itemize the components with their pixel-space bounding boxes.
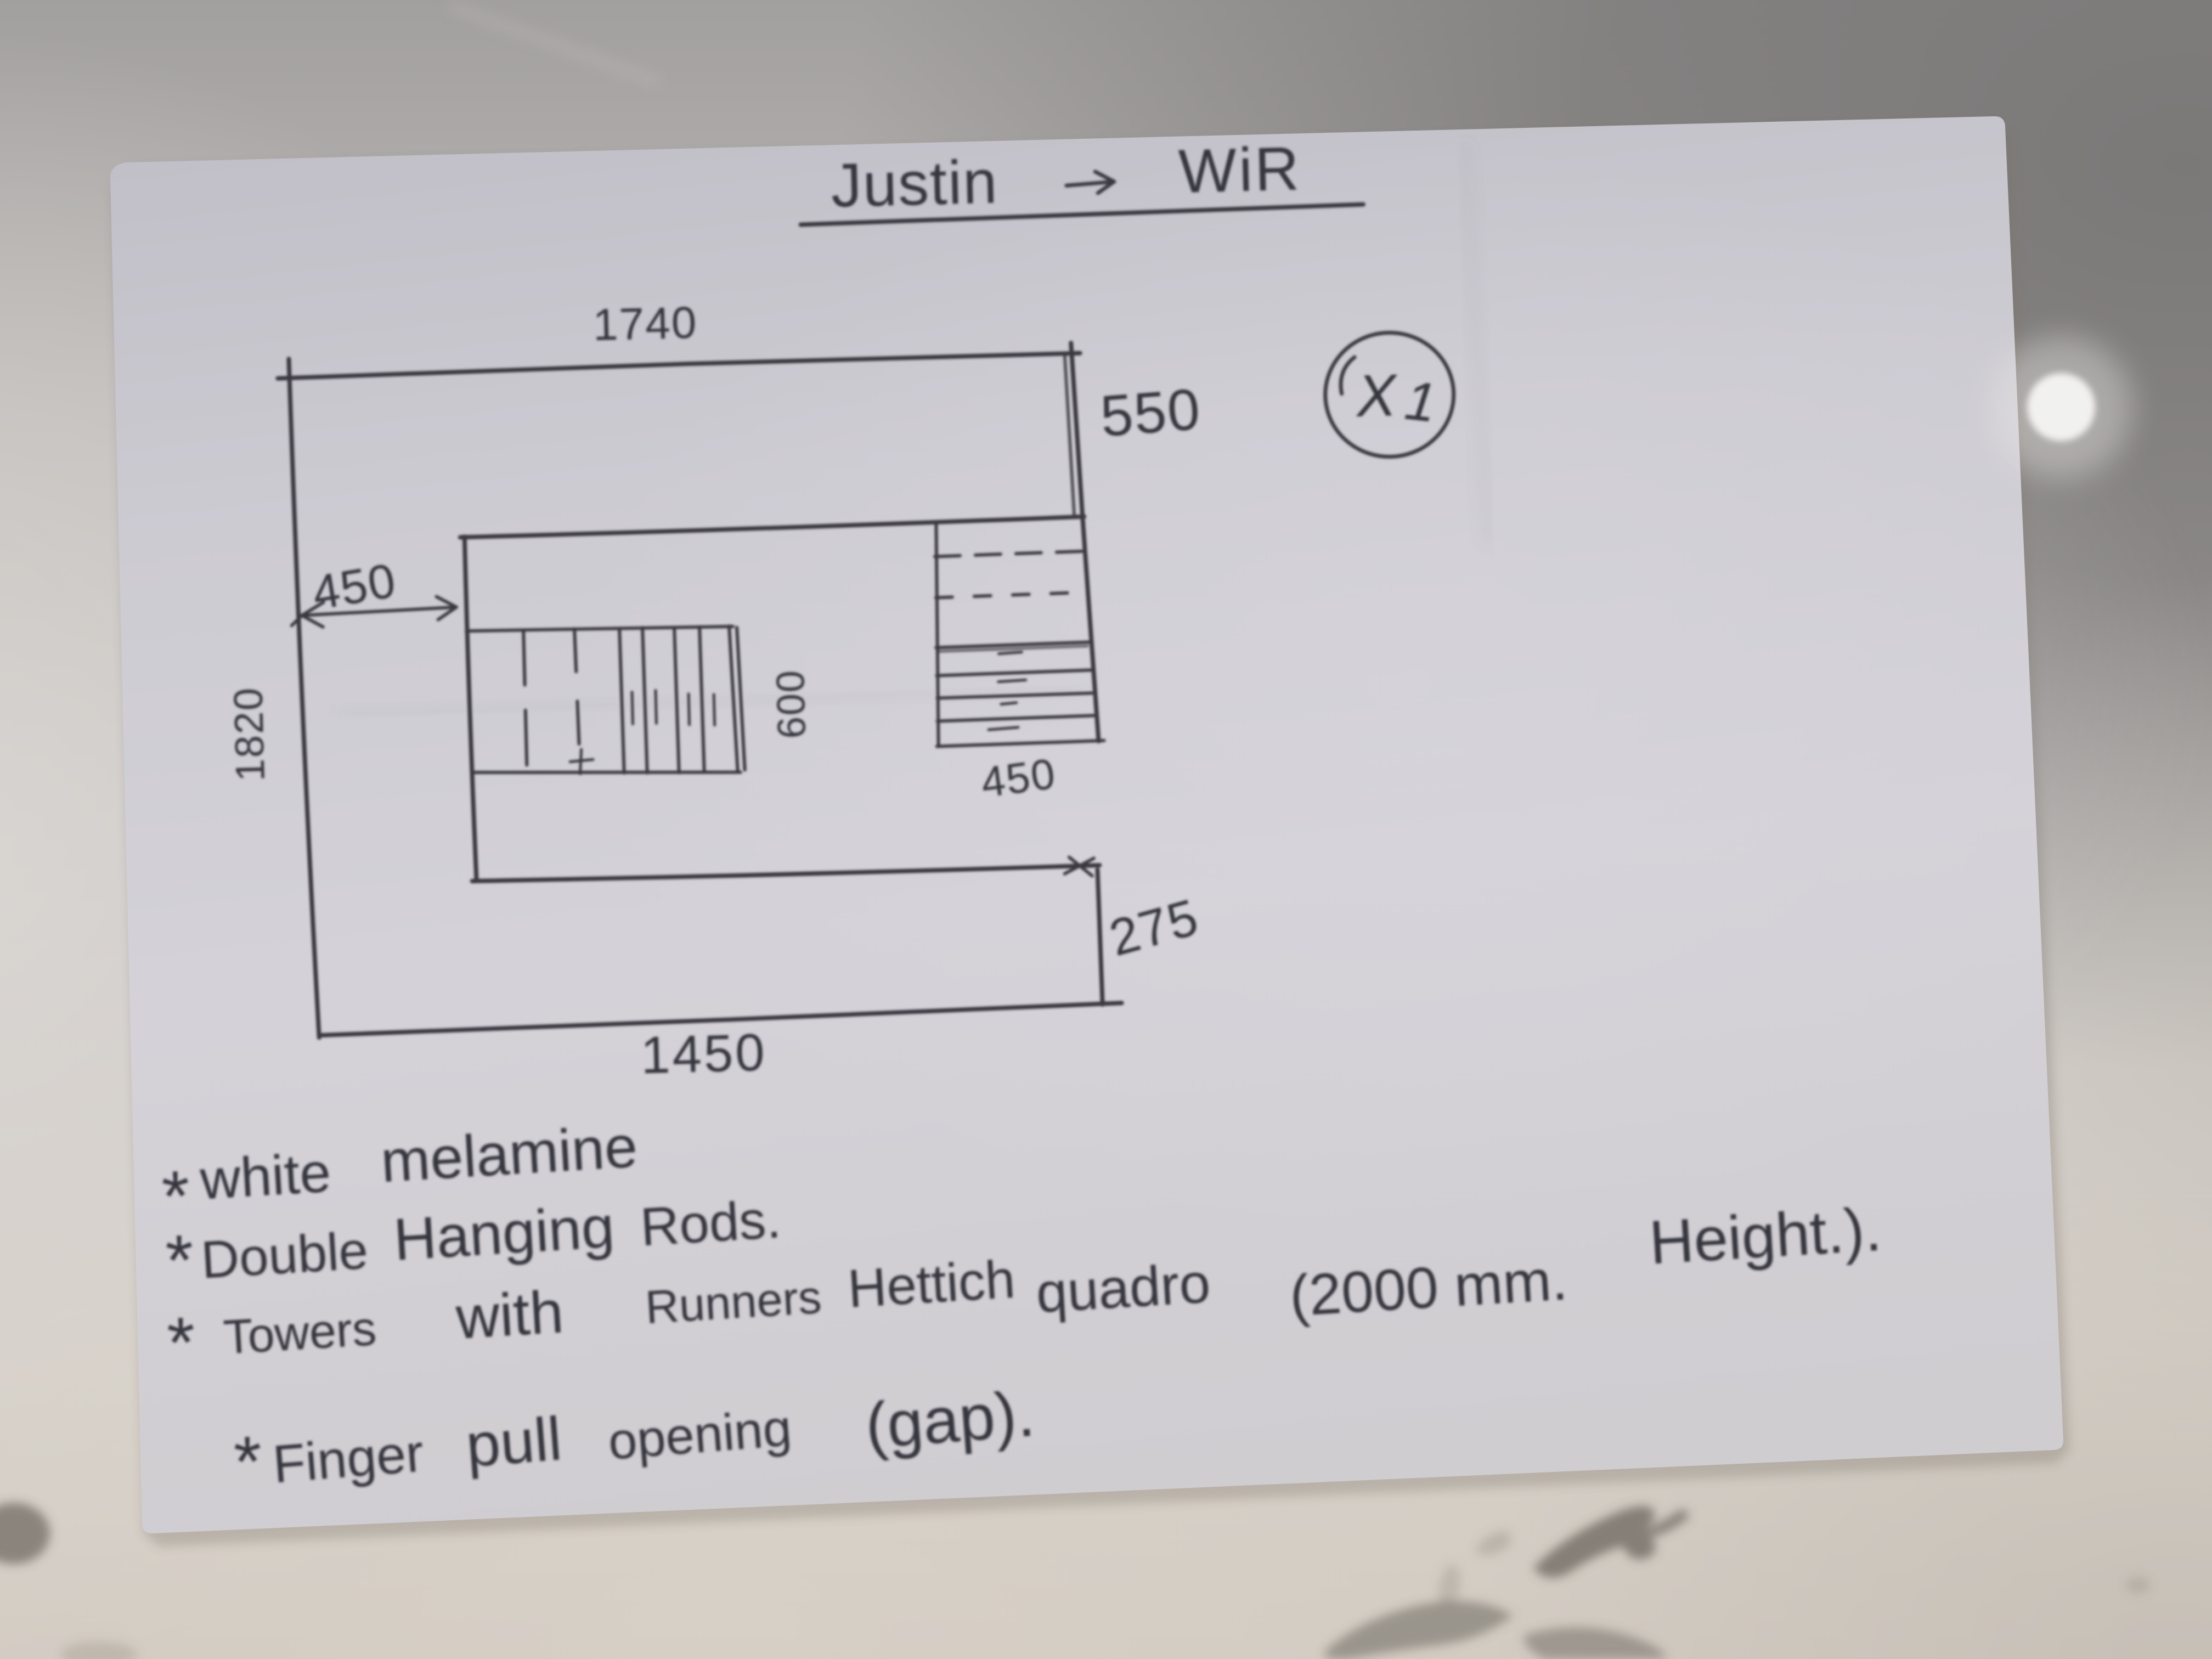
svg-text:Hanging: Hanging: [392, 1193, 616, 1273]
svg-text:Runners: Runners: [644, 1271, 823, 1334]
svg-text:(gap).: (gap).: [863, 1378, 1037, 1463]
svg-text:quadro: quadro: [1034, 1251, 1212, 1324]
svg-text:WiR: WiR: [1178, 134, 1302, 206]
svg-text:Towers: Towers: [222, 1301, 377, 1364]
svg-text:*: *: [233, 1421, 262, 1502]
svg-text:*: *: [166, 1302, 196, 1383]
svg-text:1740: 1740: [592, 297, 698, 350]
svg-text:X: X: [1354, 362, 1399, 429]
svg-text:1450: 1450: [640, 1023, 768, 1085]
svg-text:white: white: [198, 1141, 333, 1211]
svg-text:600: 600: [769, 669, 814, 739]
svg-text:450: 450: [978, 749, 1058, 806]
svg-text:Justin: Justin: [830, 147, 999, 220]
svg-text:1820: 1820: [225, 686, 273, 782]
svg-text:with: with: [454, 1278, 566, 1352]
svg-text:Double: Double: [200, 1221, 370, 1290]
svg-text:550: 550: [1098, 377, 1203, 449]
svg-text:*: *: [165, 1220, 194, 1300]
svg-text:Hettich: Hettich: [846, 1249, 1017, 1319]
svg-text:Height.).: Height.).: [1647, 1195, 1883, 1277]
svg-text:Finger: Finger: [270, 1423, 426, 1494]
svg-text:pull: pull: [464, 1404, 565, 1480]
svg-text:Rods.: Rods.: [639, 1188, 782, 1257]
